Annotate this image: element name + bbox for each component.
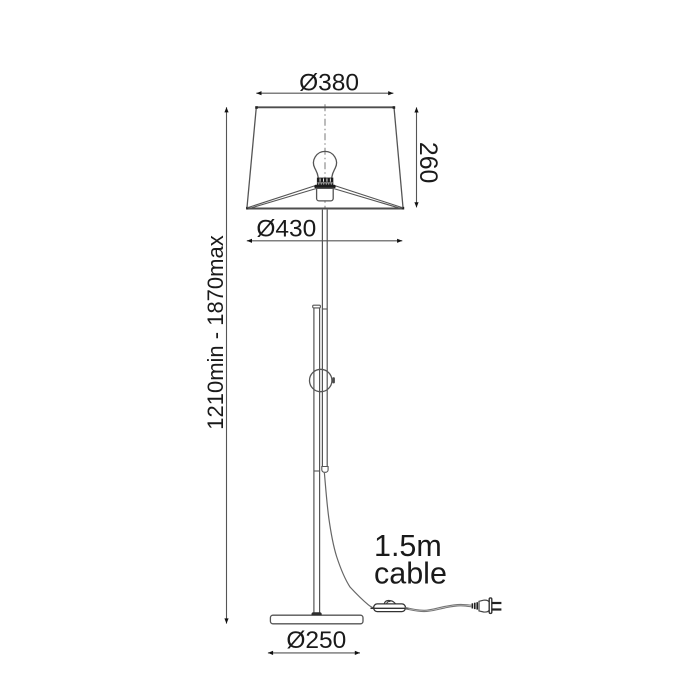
svg-text:Ø250: Ø250 xyxy=(286,627,346,654)
svg-text:Ø430: Ø430 xyxy=(256,215,316,242)
svg-text:Ø380: Ø380 xyxy=(299,69,359,96)
svg-text:1210min - 1870max: 1210min - 1870max xyxy=(203,235,228,429)
svg-text:cable: cable xyxy=(374,556,447,590)
svg-text:260: 260 xyxy=(414,142,441,183)
